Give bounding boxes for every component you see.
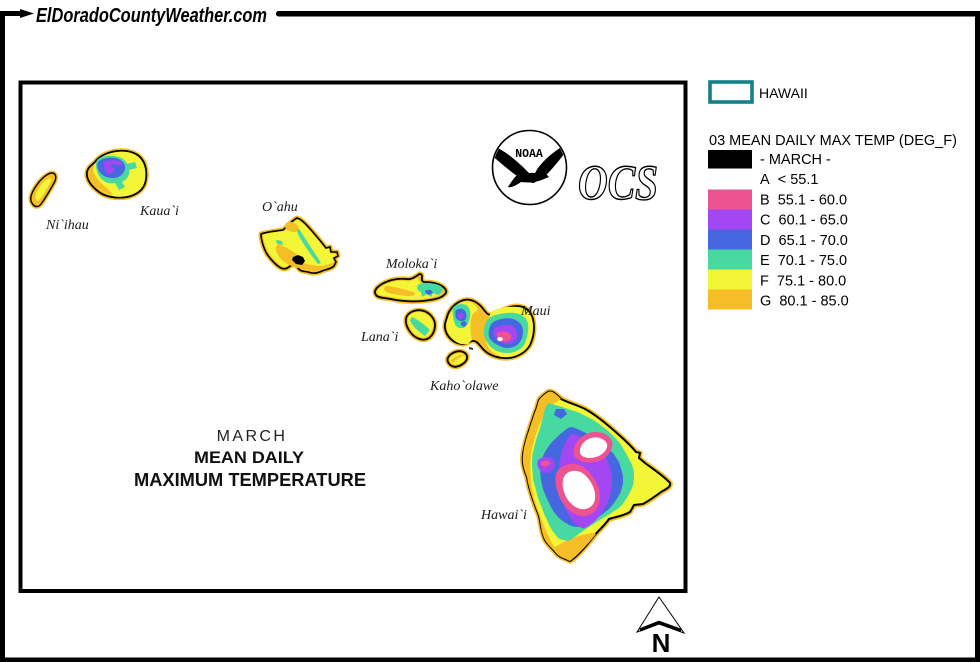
svg-text:Hawai`i: Hawai`i [480,508,527,523]
svg-text:G 80.1 - 85.0: G 80.1 - 85.0 [760,294,849,310]
svg-text:B 55.1 - 60.0: B 55.1 - 60.0 [760,193,847,209]
svg-text:MEAN DAILY: MEAN DAILY [194,448,305,467]
svg-text:F 75.1 - 80.0: F 75.1 - 80.0 [760,274,846,290]
svg-text:Ni`ihau: Ni`ihau [45,218,89,233]
svg-text:Moloka`i: Moloka`i [385,257,437,272]
svg-text:MARCH: MARCH [217,428,288,445]
svg-text:03 MEAN DAILY MAX TEMP (DEG_F): 03 MEAN DAILY MAX TEMP (DEG_F) [709,133,957,149]
svg-text:Maui: Maui [520,304,551,319]
svg-text:ElDoradoCountyWeather.com: ElDoradoCountyWeather.com [36,4,267,27]
svg-text:E 70.1 - 75.0: E 70.1 - 75.0 [760,253,847,269]
svg-text:MAXIMUM TEMPERATURE: MAXIMUM TEMPERATURE [134,470,366,490]
svg-text:C 60.1 - 65.0: C 60.1 - 65.0 [760,213,848,229]
svg-text:D 65.1 - 70.0: D 65.1 - 70.0 [760,233,848,249]
svg-text:O`ahu: O`ahu [262,200,298,215]
svg-text:Kaho`olawe: Kaho`olawe [429,379,498,394]
svg-text:- MARCH -: - MARCH - [760,152,831,168]
svg-text:Kaua`i: Kaua`i [139,204,179,219]
svg-text:HAWAII: HAWAII [759,85,808,101]
svg-text:OCS: OCS [578,154,658,210]
svg-text:N: N [652,628,671,658]
svg-text:Lana`i: Lana`i [360,330,398,345]
svg-text:A < 55.1: A < 55.1 [760,172,818,188]
svg-text:NOAA: NOAA [515,148,543,161]
